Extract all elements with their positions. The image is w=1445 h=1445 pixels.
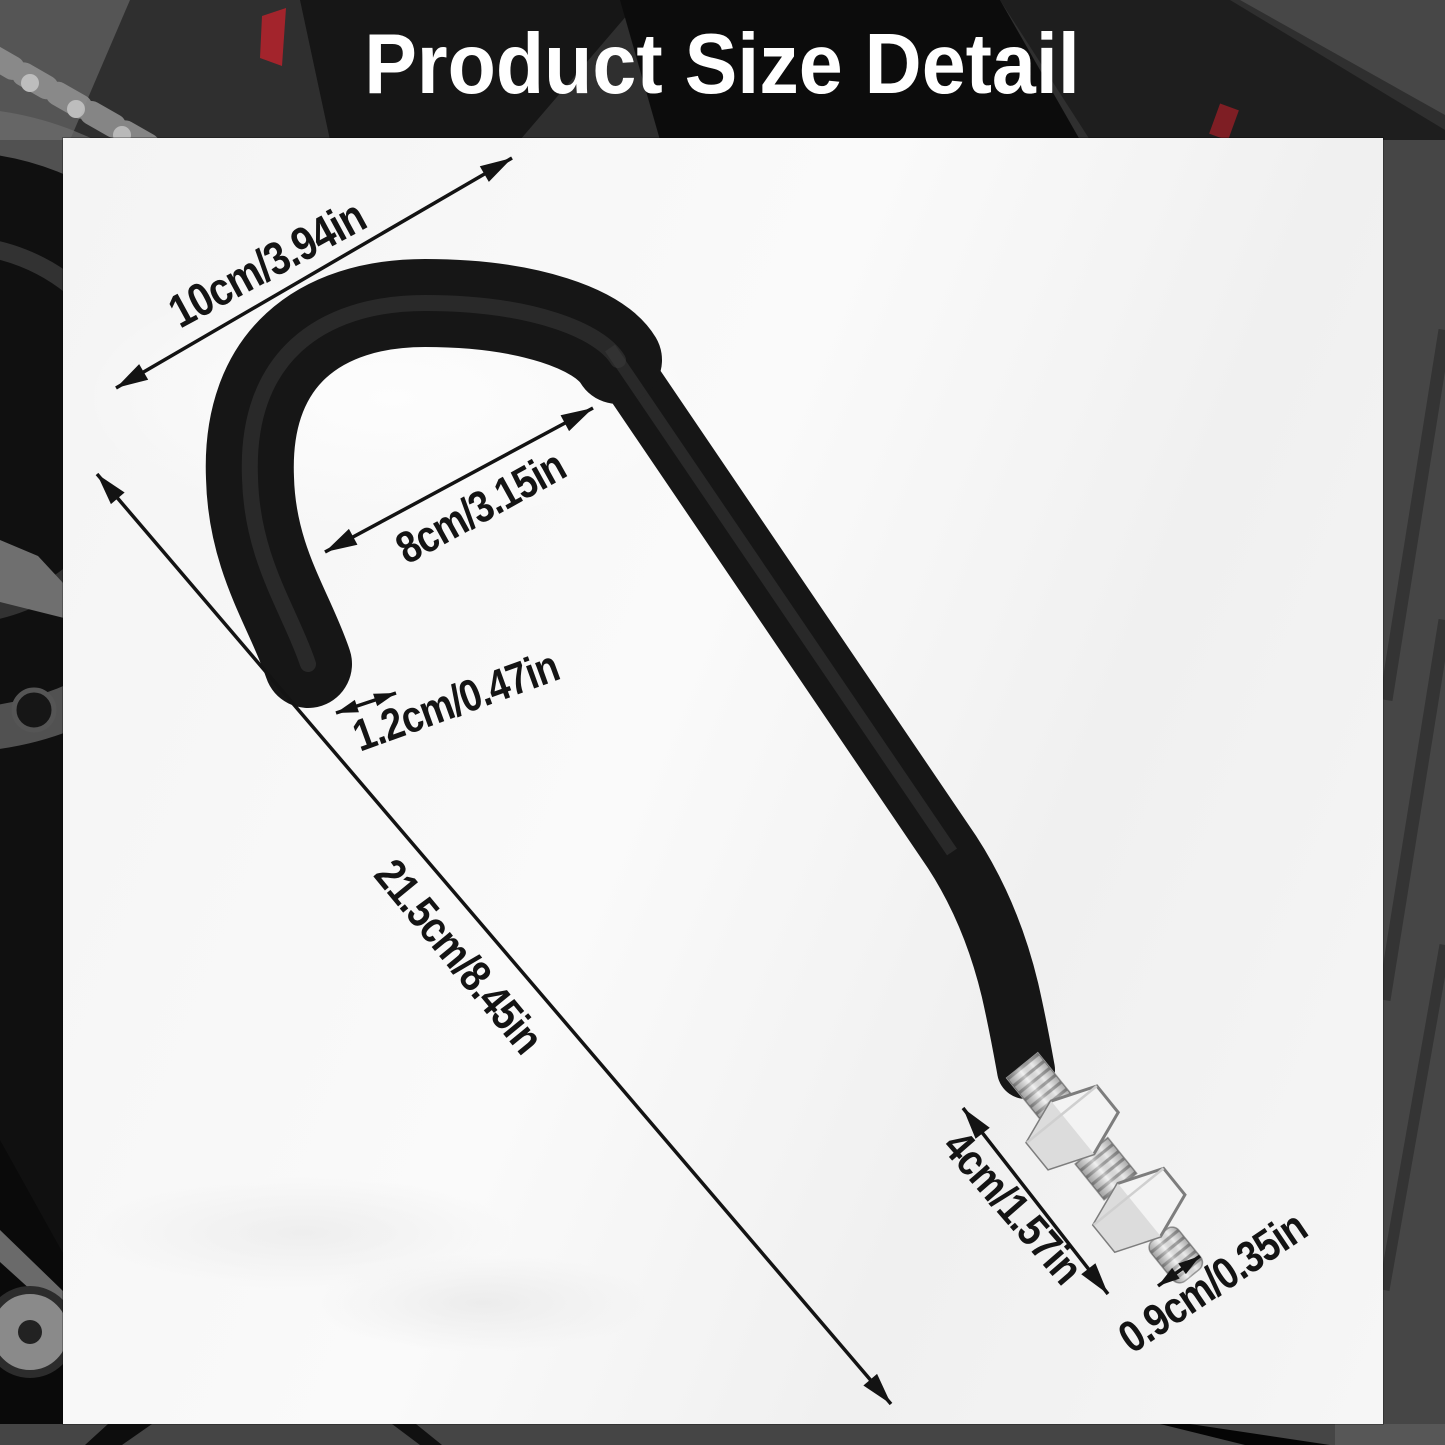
hook-shank-highlight	[610, 348, 952, 852]
hook-dimension-diagram	[0, 0, 1445, 1445]
hook-shank	[610, 348, 1026, 1070]
product-size-infographic: Product Size Detail 10cm/3.94in 8cm/3.15…	[0, 0, 1445, 1445]
page-title: Product Size Detail	[364, 14, 1080, 113]
